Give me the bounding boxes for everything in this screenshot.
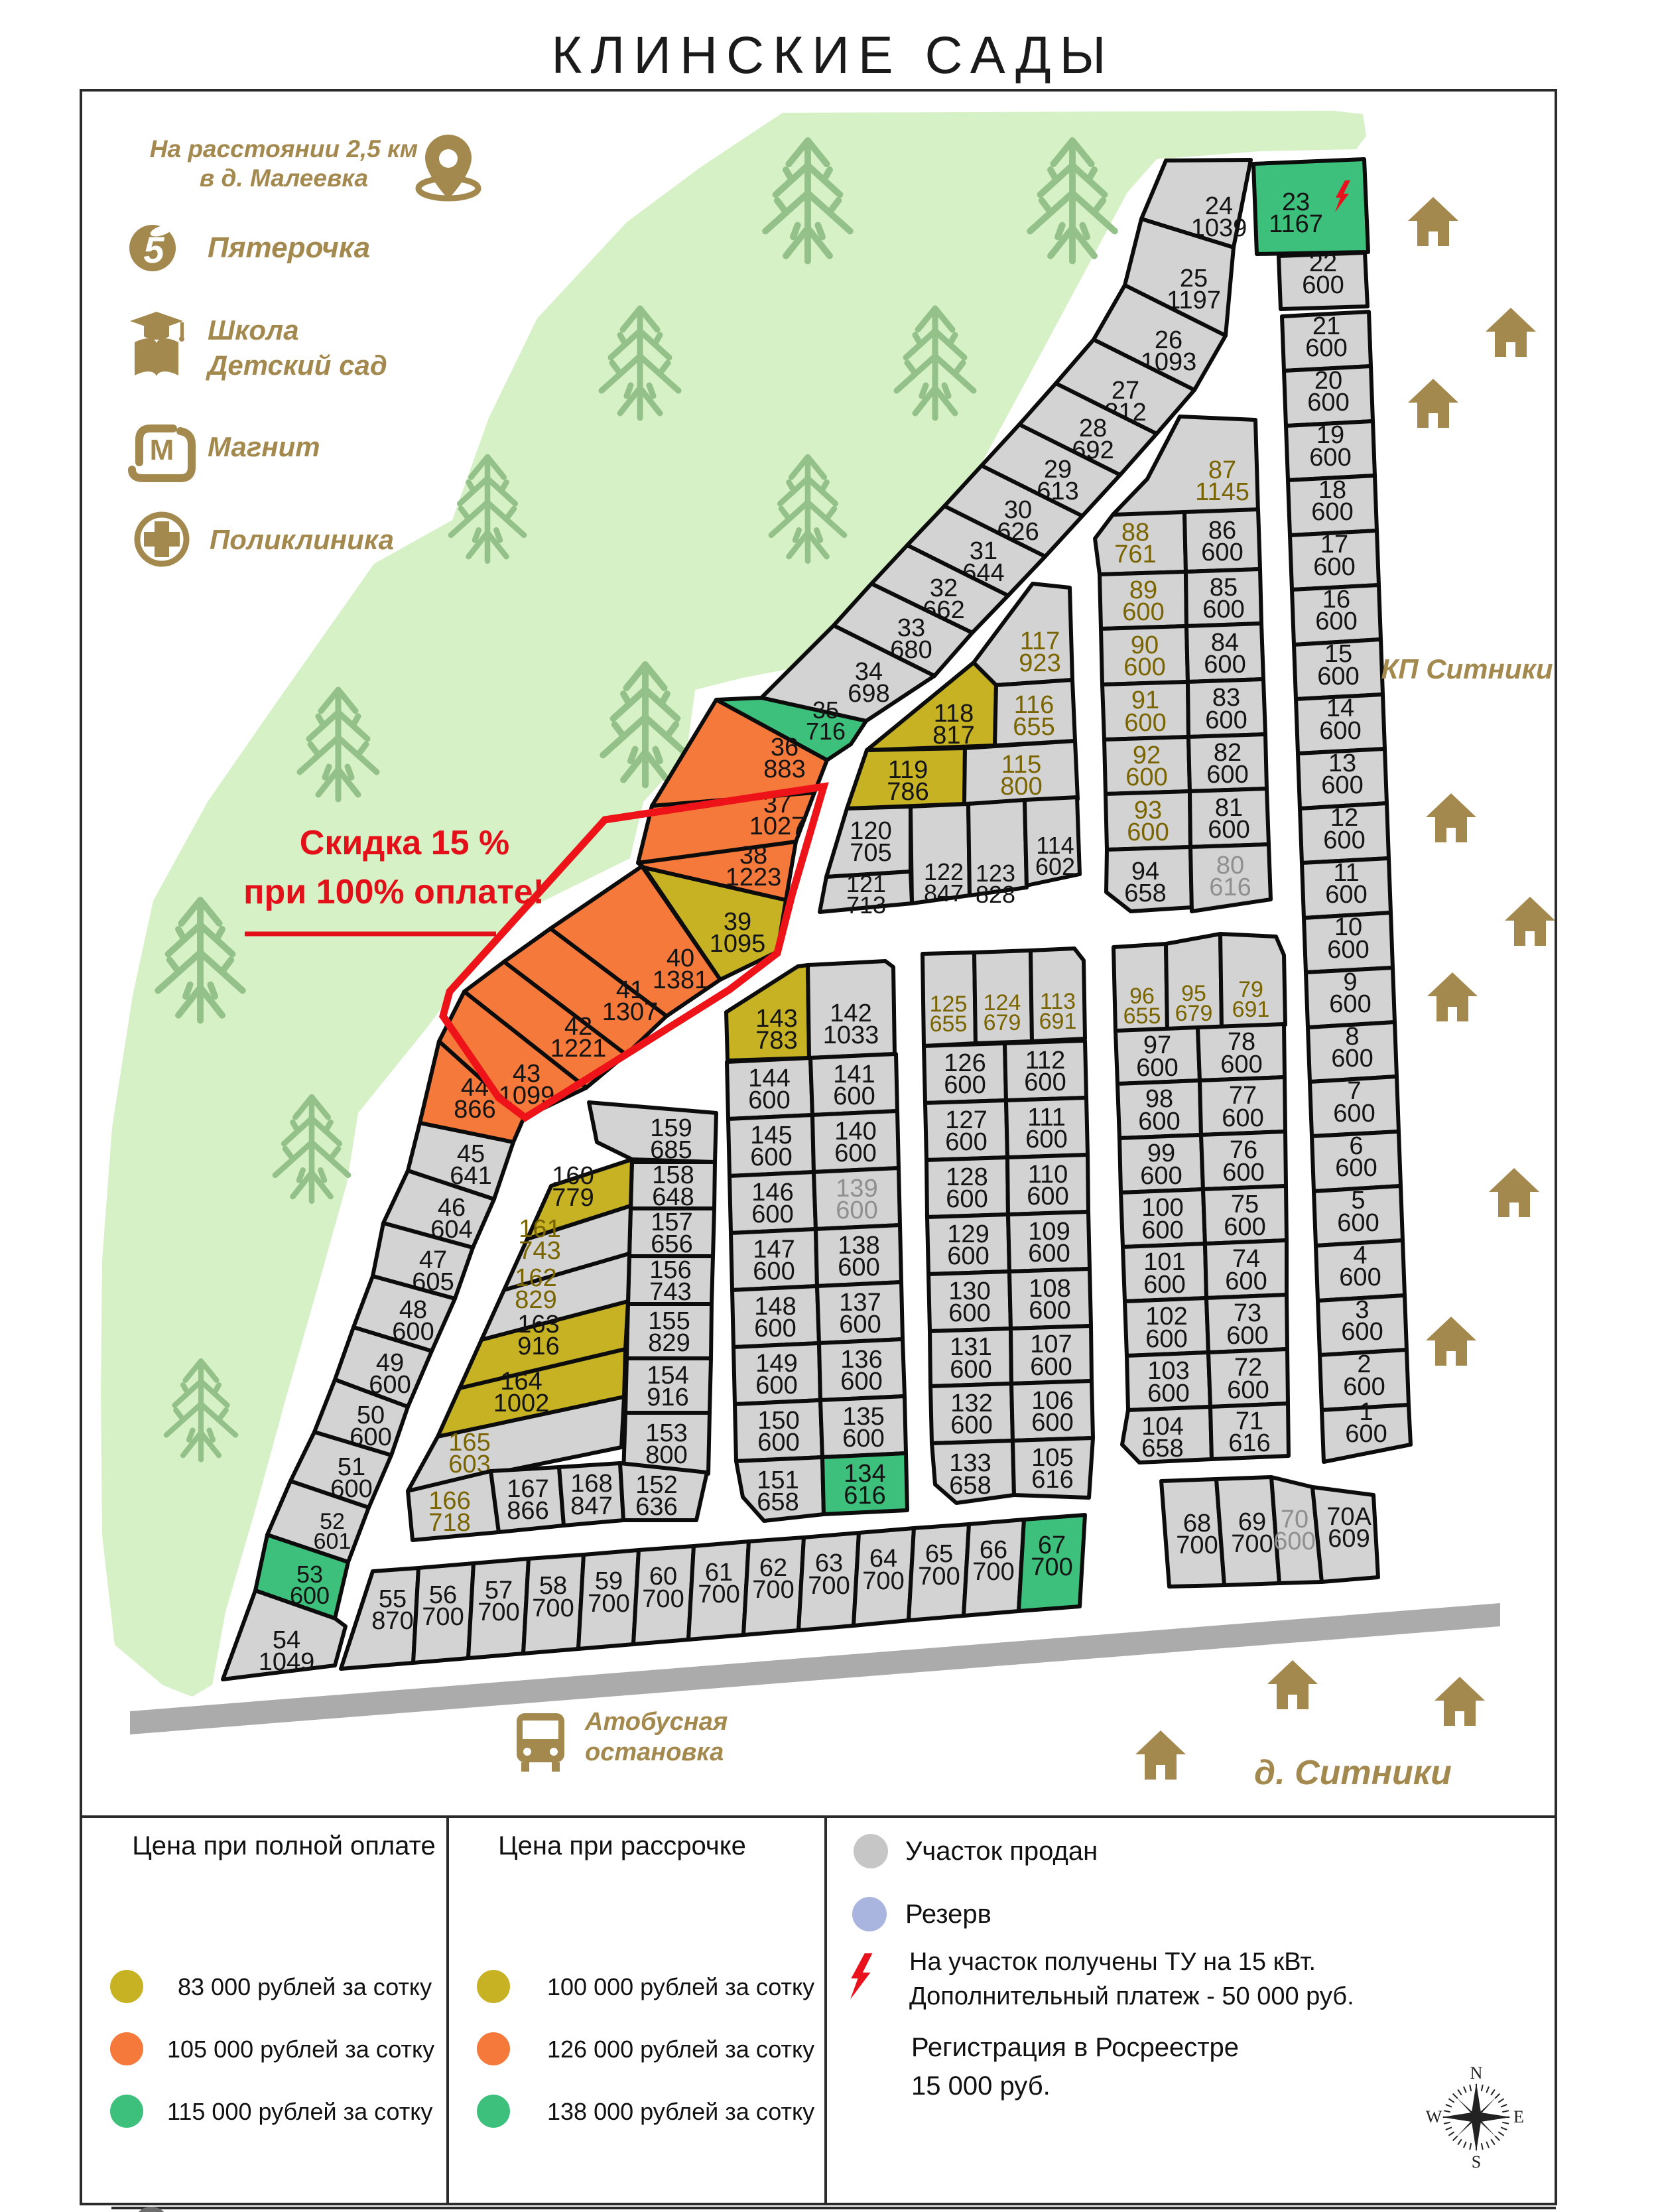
svg-text:600: 600 [1333,1100,1375,1128]
svg-text:600: 600 [946,1185,988,1213]
svg-text:N: N [1470,2063,1483,2083]
svg-text:883: 883 [763,755,805,783]
svg-text:829: 829 [648,1329,690,1357]
svg-text:600: 600 [1028,1240,1070,1268]
svg-text:700: 700 [1176,1531,1218,1559]
svg-text:15 000 руб.: 15 000 руб. [911,2071,1051,2101]
svg-text:600: 600 [1025,1126,1067,1153]
svg-text:679: 679 [1175,1001,1213,1026]
svg-text:600: 600 [1127,818,1169,846]
svg-text:679: 679 [984,1010,1021,1035]
svg-text:600: 600 [944,1071,986,1099]
svg-text:700: 700 [752,1576,794,1604]
svg-text:700: 700 [972,1558,1014,1586]
svg-text:600: 600 [1143,1271,1185,1299]
svg-text:126 000 рублей за сотку: 126 000 рублей за сотку [547,2036,814,2063]
svg-text:600: 600 [1226,1322,1268,1350]
svg-text:600: 600 [1204,651,1245,679]
svg-text:600: 600 [840,1368,882,1396]
svg-text:при 100% оплате!: при 100% оплате! [243,873,544,911]
svg-text:138 000 рублей за сотку: 138 000 рублей за сотку [547,2098,814,2125]
svg-text:600: 600 [950,1356,991,1384]
svg-text:600: 600 [1313,553,1355,581]
svg-text:655: 655 [1123,1004,1161,1029]
svg-text:1027: 1027 [749,813,806,840]
svg-text:600: 600 [833,1082,875,1110]
svg-text:616: 616 [1228,1429,1270,1457]
svg-text:718: 718 [428,1509,470,1537]
svg-text:636: 636 [635,1493,677,1521]
svg-text:600: 600 [1335,1154,1377,1182]
svg-text:W: W [1426,2107,1442,2126]
svg-text:600: 600 [1315,608,1357,635]
svg-text:700: 700 [588,1590,629,1618]
svg-text:600: 600 [1205,706,1247,734]
svg-text:600: 600 [1202,596,1244,623]
svg-text:600: 600 [950,1411,992,1439]
svg-text:600: 600 [1343,1373,1385,1401]
svg-text:д. Ситники: д. Ситники [1254,1754,1452,1792]
svg-text:713: 713 [846,891,886,919]
svg-text:600: 600 [1027,1183,1068,1210]
svg-text:600: 600 [948,1299,990,1327]
svg-text:923: 923 [1019,649,1060,677]
svg-text:600: 600 [1140,1162,1182,1190]
svg-text:600: 600 [1222,1159,1264,1187]
svg-text:1307: 1307 [602,998,659,1026]
svg-text:остановка: остановка [585,1738,724,1766]
svg-text:600: 600 [753,1258,795,1285]
svg-text:600: 600 [1125,763,1167,791]
svg-text:Участок продан: Участок продан [905,1837,1098,1866]
svg-text:E: E [1513,2107,1524,2126]
svg-text:Детский сад: Детский сад [206,350,387,381]
svg-text:783: 783 [755,1027,797,1055]
svg-text:779: 779 [552,1184,594,1212]
svg-text:600: 600 [1224,1213,1265,1241]
svg-text:в д. Малеевка: в д. Малеевка [200,164,368,192]
svg-text:600: 600 [1206,761,1248,789]
svg-text:700: 700 [808,1572,850,1600]
svg-text:828: 828 [976,881,1015,908]
svg-text:761: 761 [1114,541,1156,568]
svg-text:600: 600 [1337,1209,1379,1237]
svg-text:600: 600 [947,1242,989,1270]
svg-text:743: 743 [519,1237,560,1265]
svg-text:691: 691 [1232,997,1270,1022]
svg-text:600: 600 [1024,1069,1066,1096]
svg-text:786: 786 [887,778,928,806]
svg-text:829: 829 [515,1286,556,1314]
svg-text:600: 600 [754,1315,796,1342]
svg-text:1167: 1167 [1269,210,1323,238]
svg-text:600: 600 [1145,1325,1187,1353]
svg-text:1095: 1095 [710,930,766,958]
svg-text:1145: 1145 [1195,478,1249,506]
svg-text:КП Ситники: КП Ситники [1381,653,1553,684]
svg-text:600: 600 [1339,1264,1381,1291]
svg-text:1221: 1221 [550,1035,607,1063]
svg-text:600: 600 [1317,663,1359,690]
svg-text:Цена при рассрочке: Цена при рассрочке [498,1831,746,1860]
svg-text:600: 600 [1273,1528,1315,1555]
svg-text:600: 600 [1208,816,1249,844]
svg-text:600: 600 [1031,1409,1073,1437]
svg-text:658: 658 [1124,879,1166,907]
svg-text:600: 600 [1305,334,1347,362]
svg-text:На расстоянии 2,5 км: На расстоянии 2,5 км [150,135,418,163]
svg-text:600: 600 [1302,271,1344,299]
svg-text:1381: 1381 [653,966,709,994]
svg-text:600: 600 [1325,881,1367,909]
svg-text:S: S [1472,2152,1481,2172]
svg-text:Резерв: Резерв [905,1900,991,1929]
svg-text:600: 600 [839,1311,881,1338]
svg-text:655: 655 [930,1011,968,1037]
svg-text:700: 700 [918,1563,960,1591]
svg-text:847: 847 [570,1492,612,1520]
svg-text:691: 691 [1039,1009,1077,1034]
svg-text:На участок получены ТУ на 15 к: На участок получены ТУ на 15 кВт. [909,1948,1316,1976]
svg-text:600: 600 [1123,653,1165,681]
svg-text:600: 600 [834,1139,876,1167]
svg-text:600: 600 [1147,1380,1189,1407]
svg-text:616: 616 [844,1482,885,1510]
svg-text:800: 800 [1000,773,1042,801]
svg-text:847: 847 [924,879,964,907]
svg-text:600: 600 [1311,498,1353,526]
svg-text:600: 600 [1323,826,1365,854]
svg-text:616: 616 [1209,874,1251,901]
svg-text:1033: 1033 [823,1021,879,1049]
svg-text:600: 600 [1201,539,1243,566]
svg-text:916: 916 [517,1333,559,1360]
svg-text:866: 866 [454,1096,495,1124]
svg-text:700: 700 [478,1598,519,1626]
svg-text:658: 658 [1141,1435,1183,1463]
svg-text:600: 600 [1029,1297,1070,1325]
svg-text:600: 600 [1319,717,1361,745]
svg-text:866: 866 [507,1497,548,1525]
svg-text:600: 600 [1136,1054,1178,1082]
svg-text:115 000 рублей за сотку: 115 000 рублей за сотку [167,2098,432,2125]
svg-text:600: 600 [945,1128,987,1156]
svg-text:КЛИНСКИЕ САДЫ: КЛИНСКИЕ САДЫ [551,25,1114,84]
svg-text:600: 600 [838,1254,879,1281]
svg-text:700: 700 [532,1594,574,1622]
svg-text:700: 700 [862,1567,904,1595]
svg-text:Магнит: Магнит [208,431,320,462]
svg-text:870: 870 [371,1607,413,1635]
svg-text:700: 700 [422,1603,464,1631]
svg-text:609: 609 [1328,1525,1370,1553]
svg-text:Цена при полной оплате: Цена при полной оплате [132,1831,436,1860]
svg-text:698: 698 [848,680,889,708]
svg-text:600: 600 [1327,936,1369,964]
svg-text:Регистрация в Росреестре: Регистрация в Росреестре [911,2033,1239,2062]
svg-text:600: 600 [1141,1216,1183,1244]
svg-text:600: 600 [1341,1318,1383,1346]
svg-text:600: 600 [1030,1353,1072,1381]
svg-text:1049: 1049 [259,1648,315,1676]
svg-text:600: 600 [1331,1045,1373,1073]
svg-text:700: 700 [642,1585,684,1613]
svg-text:600: 600 [1222,1104,1263,1132]
svg-text:600: 600 [1122,598,1164,626]
svg-text:685: 685 [650,1136,692,1164]
svg-text:600: 600 [842,1425,884,1453]
svg-text:700: 700 [1231,1530,1273,1558]
svg-text:658: 658 [757,1488,798,1516]
svg-text:Пятерочка: Пятерочка [208,231,370,264]
svg-text:Дополнительный платеж - 50 000: Дополнительный платеж - 50 000 руб. [909,1983,1354,2010]
svg-text:600: 600 [755,1372,797,1399]
svg-text:100 000 рублей за сотку: 100 000 рублей за сотку [547,1973,814,2000]
svg-text:83 000 рублей за сотку: 83 000 рублей за сотку [178,1973,432,2000]
svg-text:602: 602 [1035,853,1075,880]
svg-text:716: 716 [806,718,846,745]
svg-text:Поликлиника: Поликлиника [210,524,394,555]
svg-text:600: 600 [748,1086,790,1114]
svg-text:600: 600 [757,1429,799,1457]
svg-text:600: 600 [1345,1420,1387,1448]
svg-text:600: 600 [751,1201,793,1228]
svg-text:600: 600 [1138,1108,1180,1136]
svg-text:700: 700 [698,1581,739,1608]
svg-text:М: М [150,434,174,466]
svg-text:600: 600 [1307,389,1349,417]
svg-text:658: 658 [949,1472,991,1500]
svg-text:743: 743 [649,1278,691,1306]
svg-text:600: 600 [1309,444,1351,472]
svg-text:616: 616 [1031,1466,1073,1494]
svg-text:656: 656 [651,1230,692,1258]
svg-text:600: 600 [1321,771,1363,799]
svg-text:655: 655 [1013,713,1054,741]
svg-text:600: 600 [1220,1051,1262,1078]
svg-text:105 000 рублей за сотку: 105 000 рублей за сотку [167,2036,434,2063]
svg-text:600: 600 [836,1197,877,1224]
svg-text:600: 600 [750,1143,792,1171]
svg-text:600: 600 [1227,1376,1269,1404]
svg-text:Школа: Школа [208,314,299,346]
svg-text:916: 916 [647,1384,688,1411]
svg-text:600: 600 [1329,990,1371,1018]
svg-text:600: 600 [1225,1268,1267,1295]
svg-text:Атобусная: Атобусная [584,1708,728,1736]
svg-text:Скидка 15 %: Скидка 15 % [300,824,509,862]
svg-text:600: 600 [1124,709,1166,737]
svg-text:817: 817 [932,722,974,749]
svg-text:705: 705 [850,839,891,867]
svg-text:700: 700 [1031,1553,1072,1581]
